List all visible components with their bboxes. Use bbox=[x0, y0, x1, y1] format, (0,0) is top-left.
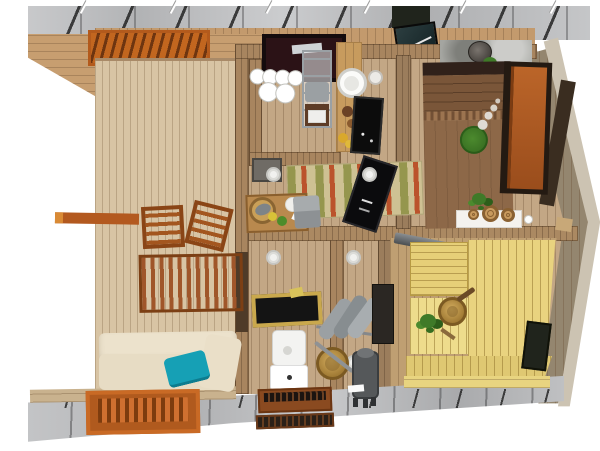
sauna-base-ledge bbox=[404, 376, 550, 388]
ceiling-light bbox=[362, 167, 377, 182]
paper-slip bbox=[348, 384, 365, 392]
sauna-bench-upper bbox=[410, 242, 468, 296]
double-bed bbox=[423, 61, 514, 229]
heater-leg bbox=[371, 397, 376, 406]
wall-knob bbox=[368, 70, 383, 85]
door-mat bbox=[258, 387, 333, 414]
wall-end-post bbox=[555, 217, 573, 232]
birch-whisk bbox=[420, 314, 436, 328]
deck-chair-1 bbox=[141, 205, 185, 249]
wood-disc bbox=[482, 205, 499, 222]
floorplan-render bbox=[0, 0, 600, 451]
lime bbox=[277, 216, 287, 226]
wood-disc bbox=[468, 209, 479, 220]
heater-leg bbox=[363, 399, 368, 408]
mat-slots bbox=[264, 391, 326, 402]
cooktop bbox=[350, 96, 384, 155]
sink-basin bbox=[344, 76, 359, 91]
ceiling-light bbox=[346, 250, 361, 265]
ceiling-light bbox=[266, 250, 281, 265]
heater-leg bbox=[353, 398, 358, 407]
sauna-stove bbox=[372, 284, 394, 344]
fire-grate-slats bbox=[98, 397, 188, 423]
bed-head-section bbox=[423, 74, 512, 112]
toilet-button bbox=[283, 346, 292, 355]
deck-slat-platform bbox=[139, 253, 244, 313]
sauna-bucket bbox=[438, 297, 467, 326]
shower-tray bbox=[251, 291, 323, 328]
seat-cushion bbox=[293, 195, 321, 229]
wood-disc bbox=[501, 208, 515, 222]
food-item bbox=[342, 106, 353, 117]
dresser-plant bbox=[472, 193, 486, 205]
fire-grate bbox=[86, 389, 201, 435]
lemon bbox=[268, 212, 277, 221]
door-mat-outer bbox=[256, 413, 334, 430]
entry-door bbox=[507, 66, 547, 189]
bed-decor-dot bbox=[495, 98, 500, 103]
heater-cap bbox=[357, 348, 374, 358]
timber-beam bbox=[55, 212, 139, 224]
shelf-box bbox=[308, 110, 326, 123]
cup bbox=[524, 215, 533, 224]
ceiling-light bbox=[266, 167, 281, 182]
shelf-towels bbox=[305, 82, 329, 102]
bed-decor-dot bbox=[490, 104, 497, 111]
toilet-dot bbox=[287, 375, 292, 380]
